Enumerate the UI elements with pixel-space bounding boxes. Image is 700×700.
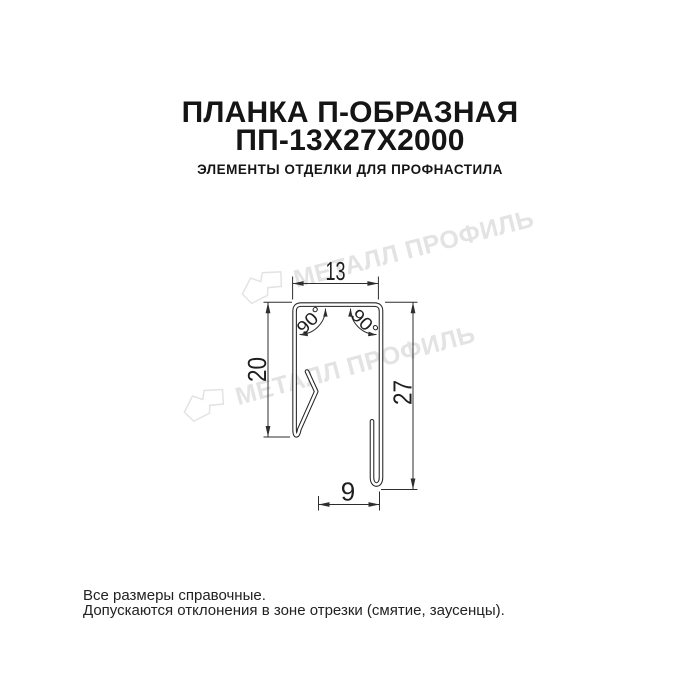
angle-label-right: 90° bbox=[347, 305, 382, 340]
dim-label-20: 20 bbox=[242, 357, 272, 382]
dim-top-width: 13 bbox=[293, 256, 379, 300]
dim-label-27: 27 bbox=[388, 380, 418, 405]
catalog-page: МЕТАЛЛ ПРОФИЛЬ МЕТАЛЛ ПРОФИЛЬ ПЛАНКА П-О… bbox=[0, 0, 700, 700]
dim-label-13: 13 bbox=[326, 256, 346, 286]
footer-note-line2: Допускаются отклонения в зоне отрезки (с… bbox=[83, 603, 505, 618]
footer-notes: Все размеры справочные. Допускаются откл… bbox=[83, 588, 505, 618]
footer-note-line1: Все размеры справочные. bbox=[83, 588, 505, 603]
dim-label-9: 9 bbox=[341, 477, 355, 507]
dim-right-height: 27 bbox=[381, 302, 418, 489]
angle-annotation-right: 90° bbox=[347, 305, 382, 340]
dim-left-height: 20 bbox=[242, 302, 292, 437]
